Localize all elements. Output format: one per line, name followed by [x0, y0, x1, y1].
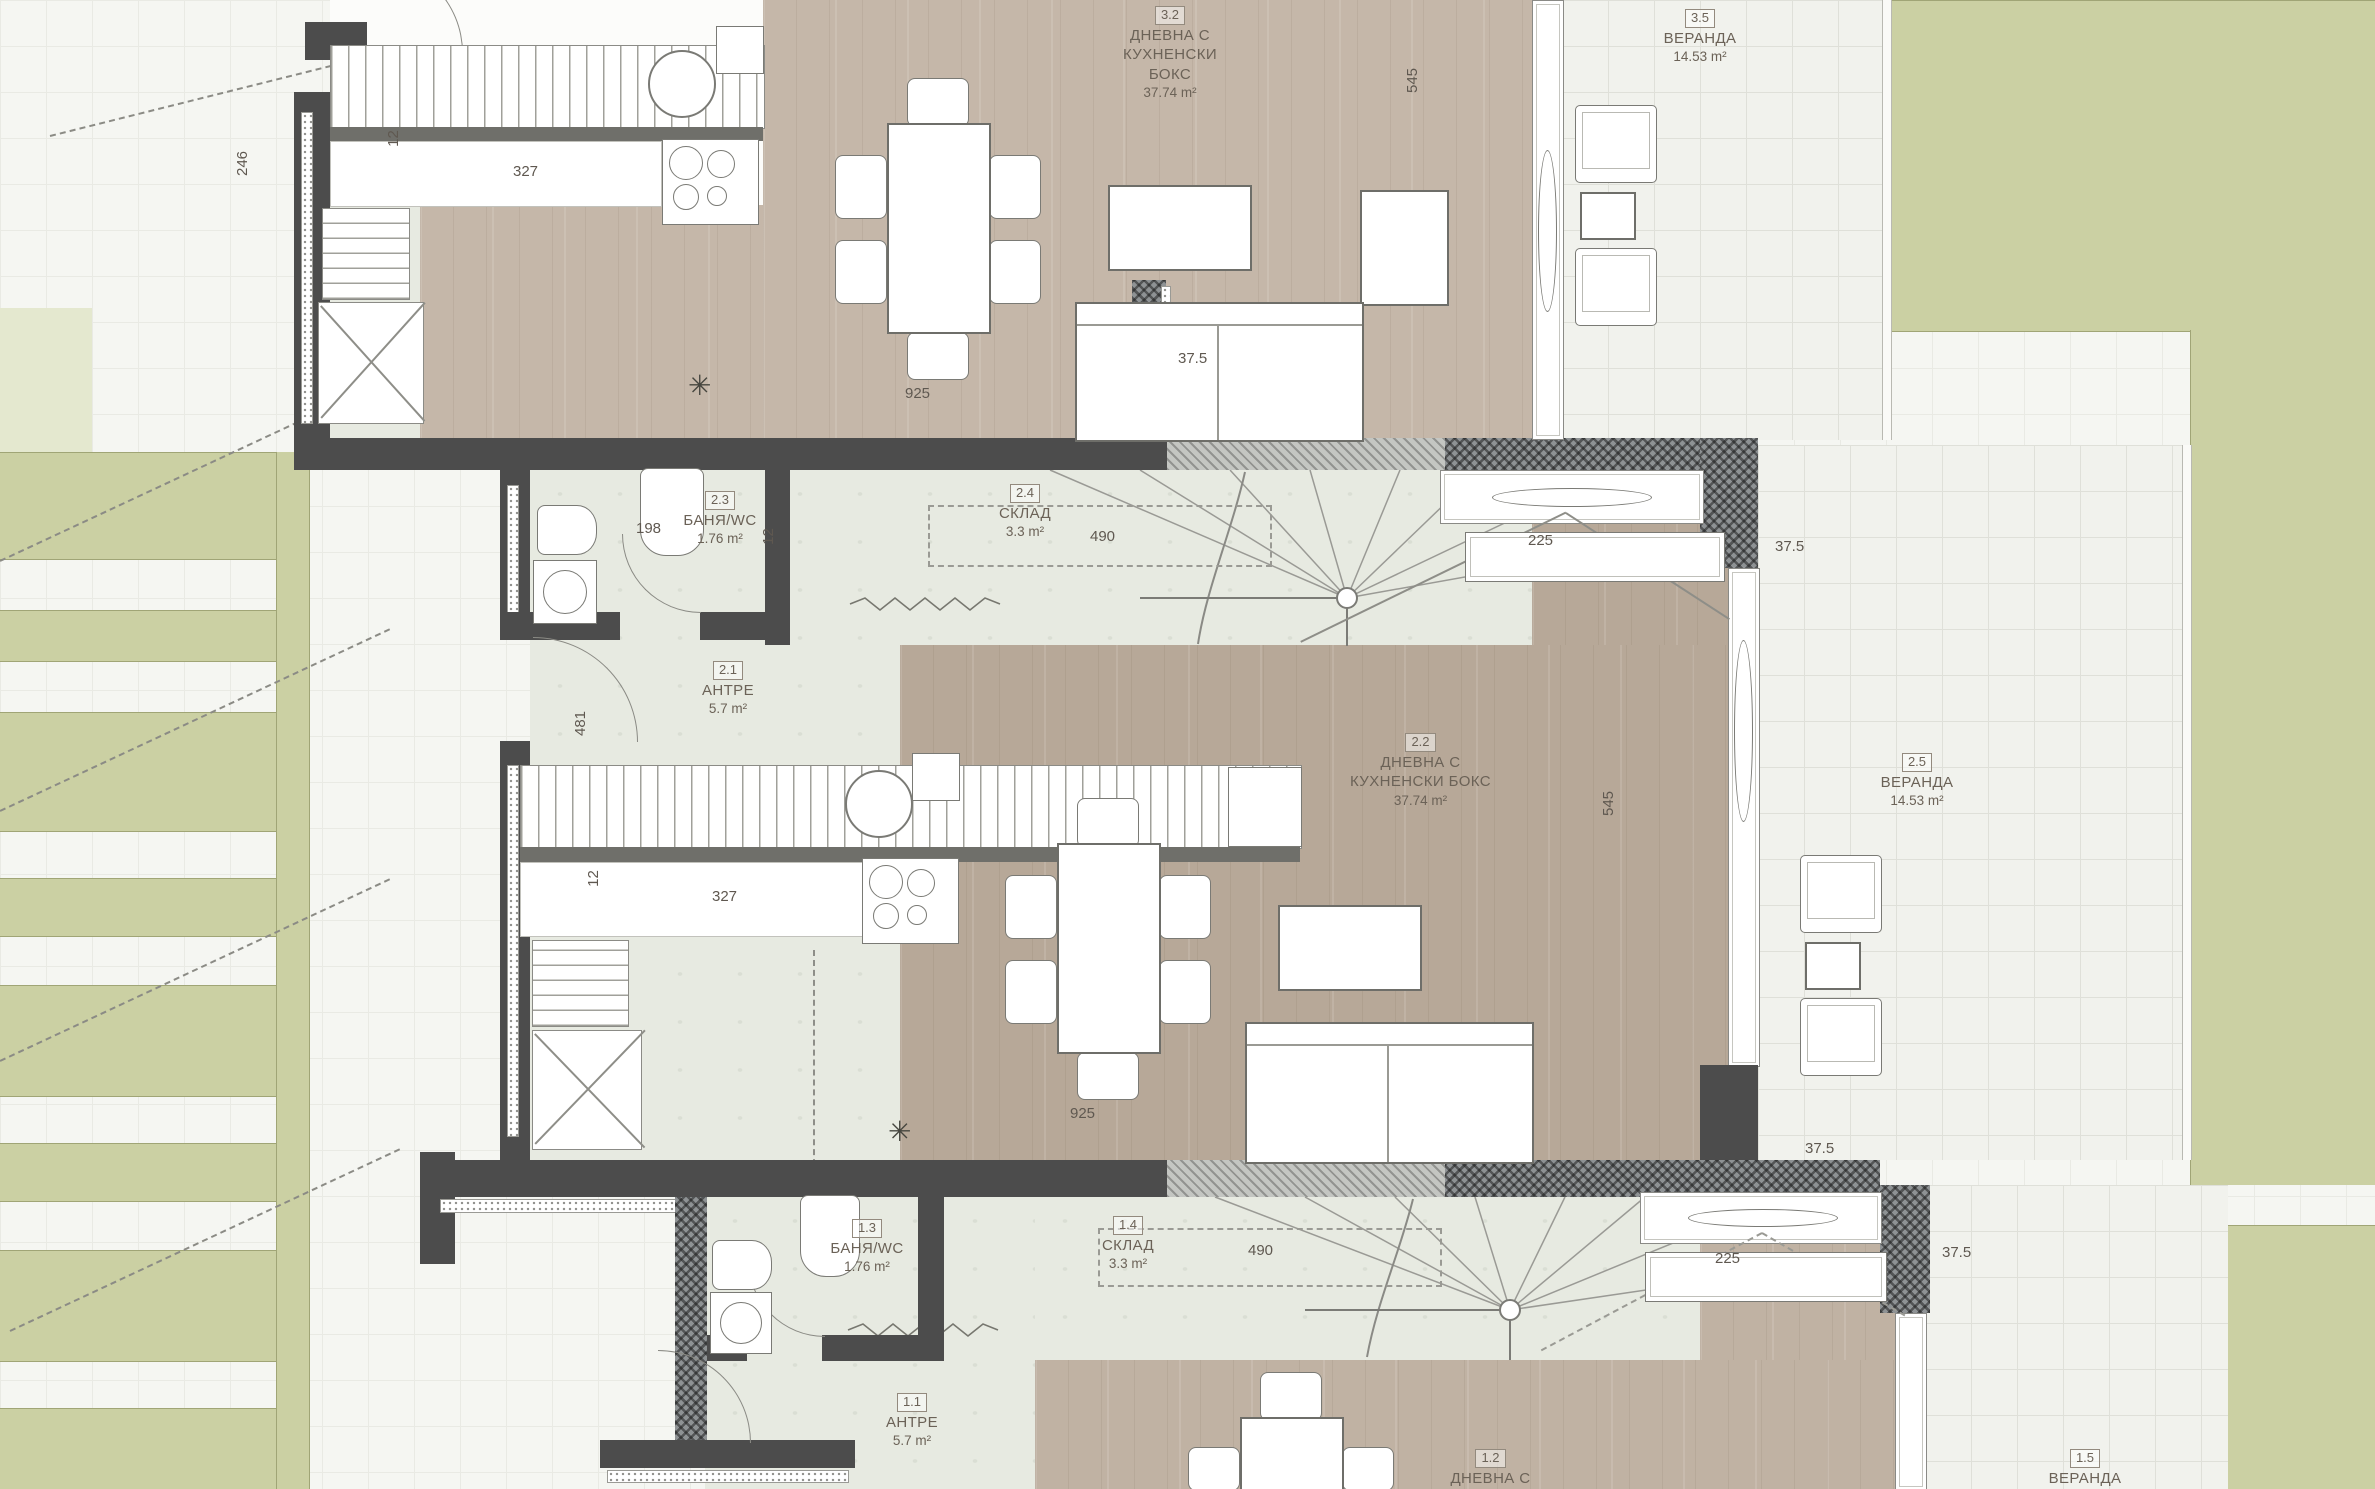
room-name: КУХНЕНСКИ БОКС: [1100, 45, 1240, 84]
room-label-2-5: 2.5 ВЕРАНДА 14.53 m²: [1862, 752, 1972, 810]
room-label-1-2: 1.2 ДНЕВНА С: [1418, 1448, 1563, 1488]
dim-37-5: 37.5: [1178, 350, 1207, 367]
room-name: ВЕРАНДА: [1862, 773, 1972, 793]
room-area: 5.7 m²: [862, 1432, 962, 1450]
room-area: 5.7 m²: [678, 700, 778, 718]
armchair: [1575, 248, 1657, 326]
room-label-1-1: 1.1 АНТРЕ 5.7 m²: [862, 1392, 962, 1450]
armchair: [1800, 855, 1882, 933]
armchair: [1575, 105, 1657, 183]
side-table: [1580, 192, 1636, 240]
dim-925: 925: [905, 385, 930, 402]
room-label-1-5: 1.5 ВЕРАНДА: [2030, 1448, 2140, 1488]
room-name: АНТРЕ: [862, 1413, 962, 1433]
chair: [1077, 798, 1139, 848]
chair: [1005, 875, 1057, 939]
green-area: [1890, 0, 2375, 332]
party-wall: [1445, 438, 1702, 470]
dim-246: 246: [234, 151, 251, 176]
party-wall: [440, 1160, 1167, 1197]
burner: [673, 184, 699, 210]
dim-481: 481: [572, 711, 589, 736]
wall-insulation: [507, 485, 519, 627]
chair: [1188, 1447, 1240, 1489]
dimension-band: [330, 141, 662, 207]
room-label-2-1: 2.1 АНТРЕ 5.7 m²: [678, 660, 778, 718]
dim-490: 490: [1248, 1242, 1273, 1259]
burner: [873, 903, 899, 929]
window-wall: [1895, 1313, 1927, 1489]
room-number: 2.5: [1902, 753, 1932, 772]
room-area: 1.76 m²: [812, 1258, 922, 1276]
green-area: [2228, 1225, 2375, 1489]
party-wall: [294, 438, 1167, 470]
zigzag-break-line: [850, 596, 1000, 612]
room-name: ДНЕВНА С: [1418, 1469, 1563, 1489]
floor-plan: ✳ ✳ 3.2 ДНЕВНА С КУХНЕНСКИ БОКС 37.74 m²…: [0, 0, 2375, 1489]
shower-line: [534, 1030, 645, 1145]
veranda-parapet: [1882, 0, 1892, 440]
chair: [1159, 960, 1211, 1024]
party-wall: [1167, 438, 1445, 470]
sofa-detail: [1247, 1044, 1532, 1046]
room-name: ВЕРАНДА: [1645, 29, 1755, 49]
shower-line: [320, 302, 425, 418]
room-name: ДНЕВНА С: [1100, 26, 1240, 46]
burner: [707, 150, 735, 178]
sofa-chaise: [1360, 190, 1449, 306]
utility-counter: [322, 208, 410, 300]
dim-12: 12: [385, 130, 402, 147]
coffee-table: [1108, 185, 1252, 271]
burner: [907, 869, 935, 897]
room-name: СКЛАД: [1078, 1236, 1178, 1256]
sliding-panel: [1538, 150, 1557, 312]
snowflake-symbol: ✳: [888, 1118, 911, 1146]
dim-37-5: 37.5: [1775, 538, 1804, 555]
veranda-1-5: [1925, 1185, 2228, 1489]
room-number: 2.3: [705, 491, 735, 510]
dim-12: 12: [585, 870, 602, 887]
green-area: [0, 308, 92, 452]
green-strip: [276, 452, 310, 1489]
green-stripe: [0, 1408, 276, 1489]
wall: [600, 1440, 855, 1468]
dim-925: 925: [1070, 1105, 1095, 1122]
room-number: 1.2: [1475, 1449, 1505, 1468]
wall-corner-block: [1700, 1065, 1758, 1160]
wall: [822, 1335, 944, 1361]
room-number: 1.3: [852, 1219, 882, 1238]
room-name: ДНЕВНА С: [1338, 753, 1503, 773]
living-floor-unit3: [420, 205, 763, 438]
dim-37-5: 37.5: [1942, 1244, 1971, 1261]
basin: [912, 753, 960, 801]
room-number: 1.4: [1113, 1216, 1143, 1235]
room-number: 1.5: [2070, 1449, 2100, 1468]
room-area: 37.74 m²: [1338, 792, 1503, 810]
sofa-detail: [1077, 324, 1362, 326]
green-stripe: [0, 1143, 276, 1202]
fridge: [1228, 767, 1302, 847]
room-name: СКЛАД: [975, 504, 1075, 524]
chair: [1005, 960, 1057, 1024]
dim-545: 545: [1404, 68, 1421, 93]
wall-insulation: [607, 1470, 849, 1483]
dining-table: [1057, 843, 1161, 1054]
shower: [318, 302, 424, 424]
dim-225: 225: [1715, 1250, 1740, 1267]
dining-table: [1240, 1417, 1344, 1489]
room-number: 2.4: [1010, 484, 1040, 503]
room-label-2-4: 2.4 СКЛАД 3.3 m²: [975, 483, 1075, 541]
room-number: 3.5: [1685, 9, 1715, 28]
chair: [1260, 1372, 1322, 1421]
armchair: [1800, 998, 1882, 1076]
room-number: 1.1: [897, 1393, 927, 1412]
dim-198: 198: [636, 520, 661, 537]
sideboard: [1645, 1252, 1887, 1302]
room-label-1-3: 1.3 БАНЯ/WC 1.76 m²: [812, 1218, 922, 1276]
chair: [835, 240, 887, 304]
room-area: 3.3 m²: [975, 523, 1075, 541]
room-number: 2.2: [1405, 733, 1435, 752]
sliding-door-leaf: [1492, 488, 1652, 507]
room-number: 3.2: [1155, 6, 1185, 25]
green-stripe: [0, 1250, 276, 1362]
stove: [662, 139, 759, 225]
room-name: ВЕРАНДА: [2030, 1469, 2140, 1489]
green-stripe: [0, 878, 276, 937]
green-stripe: [0, 452, 276, 560]
dim-545: 545: [1600, 791, 1617, 816]
chair: [989, 240, 1041, 304]
stove: [862, 858, 959, 944]
dimension-band: [520, 862, 864, 937]
green-area: [2190, 330, 2375, 1185]
chair: [835, 155, 887, 219]
room-label-3-2: 3.2 ДНЕВНА С КУХНЕНСКИ БОКС 37.74 m²: [1100, 5, 1240, 102]
chair: [1159, 875, 1211, 939]
burner: [869, 865, 903, 899]
dining-table: [887, 123, 991, 334]
room-name: АНТРЕ: [678, 681, 778, 701]
room-number: 2.1: [713, 661, 743, 680]
dim-37-5: 37.5: [1805, 1140, 1834, 1157]
sofa: [1075, 302, 1364, 442]
utility-counter: [532, 940, 629, 1027]
basin: [716, 26, 764, 74]
dim-327: 327: [712, 888, 737, 905]
snowflake-symbol: ✳: [688, 372, 711, 400]
room-label-3-5: 3.5 ВЕРАНДА 14.53 m²: [1645, 8, 1755, 66]
sliding-door-leaf: [1688, 1209, 1838, 1227]
washing-machine: [533, 560, 597, 624]
room-area: 3.3 m²: [1078, 1255, 1178, 1273]
room-area: 14.53 m²: [1862, 792, 1972, 810]
sideboard: [1465, 532, 1725, 582]
chair: [1342, 1447, 1394, 1489]
room-name: КУХНЕНСКИ БОКС: [1338, 772, 1503, 792]
projection-dashed-line: [813, 950, 815, 1195]
wall-insulation: [301, 112, 313, 424]
chair: [989, 155, 1041, 219]
shower-line: [534, 1033, 645, 1148]
room-name: БАНЯ/WC: [812, 1239, 922, 1259]
chair: [907, 332, 969, 380]
dim-12: 12: [760, 528, 777, 545]
room-label-1-4: 1.4 СКЛАД 3.3 m²: [1078, 1215, 1178, 1273]
dim-225: 225: [1528, 532, 1553, 549]
shower-line: [320, 305, 425, 421]
sofa-detail: [1217, 324, 1219, 440]
green-stripe: [0, 712, 276, 832]
coffee-table: [1278, 905, 1422, 991]
burner: [907, 905, 927, 925]
wall-insulation: [507, 765, 519, 1137]
green-stripe: [0, 610, 276, 662]
shower: [532, 1030, 642, 1150]
party-wall: [1167, 1160, 1445, 1197]
burner: [707, 186, 727, 206]
sofa-detail: [1387, 1044, 1389, 1162]
wall-insulation: [440, 1199, 679, 1213]
chair: [907, 78, 969, 127]
sofa: [1245, 1022, 1534, 1164]
dim-327: 327: [513, 163, 538, 180]
dim-490: 490: [1090, 528, 1115, 545]
wall-corner-block: [1880, 1185, 1930, 1313]
sliding-panel: [1734, 640, 1753, 822]
room-area: 37.74 m²: [1100, 84, 1240, 102]
side-table: [1805, 942, 1861, 990]
room-label-2-2: 2.2 ДНЕВНА С КУХНЕНСКИ БОКС 37.74 m²: [1338, 732, 1503, 809]
washing-machine: [710, 1292, 772, 1354]
kitchen-sink: [845, 770, 913, 838]
veranda-parapet: [2182, 445, 2192, 1160]
room-area: 14.53 m²: [1645, 48, 1755, 66]
wall: [700, 612, 790, 640]
kitchen-sink: [648, 50, 716, 118]
toilet: [537, 505, 597, 555]
toilet: [712, 1240, 772, 1290]
chair: [1077, 1052, 1139, 1100]
burner: [669, 146, 703, 180]
